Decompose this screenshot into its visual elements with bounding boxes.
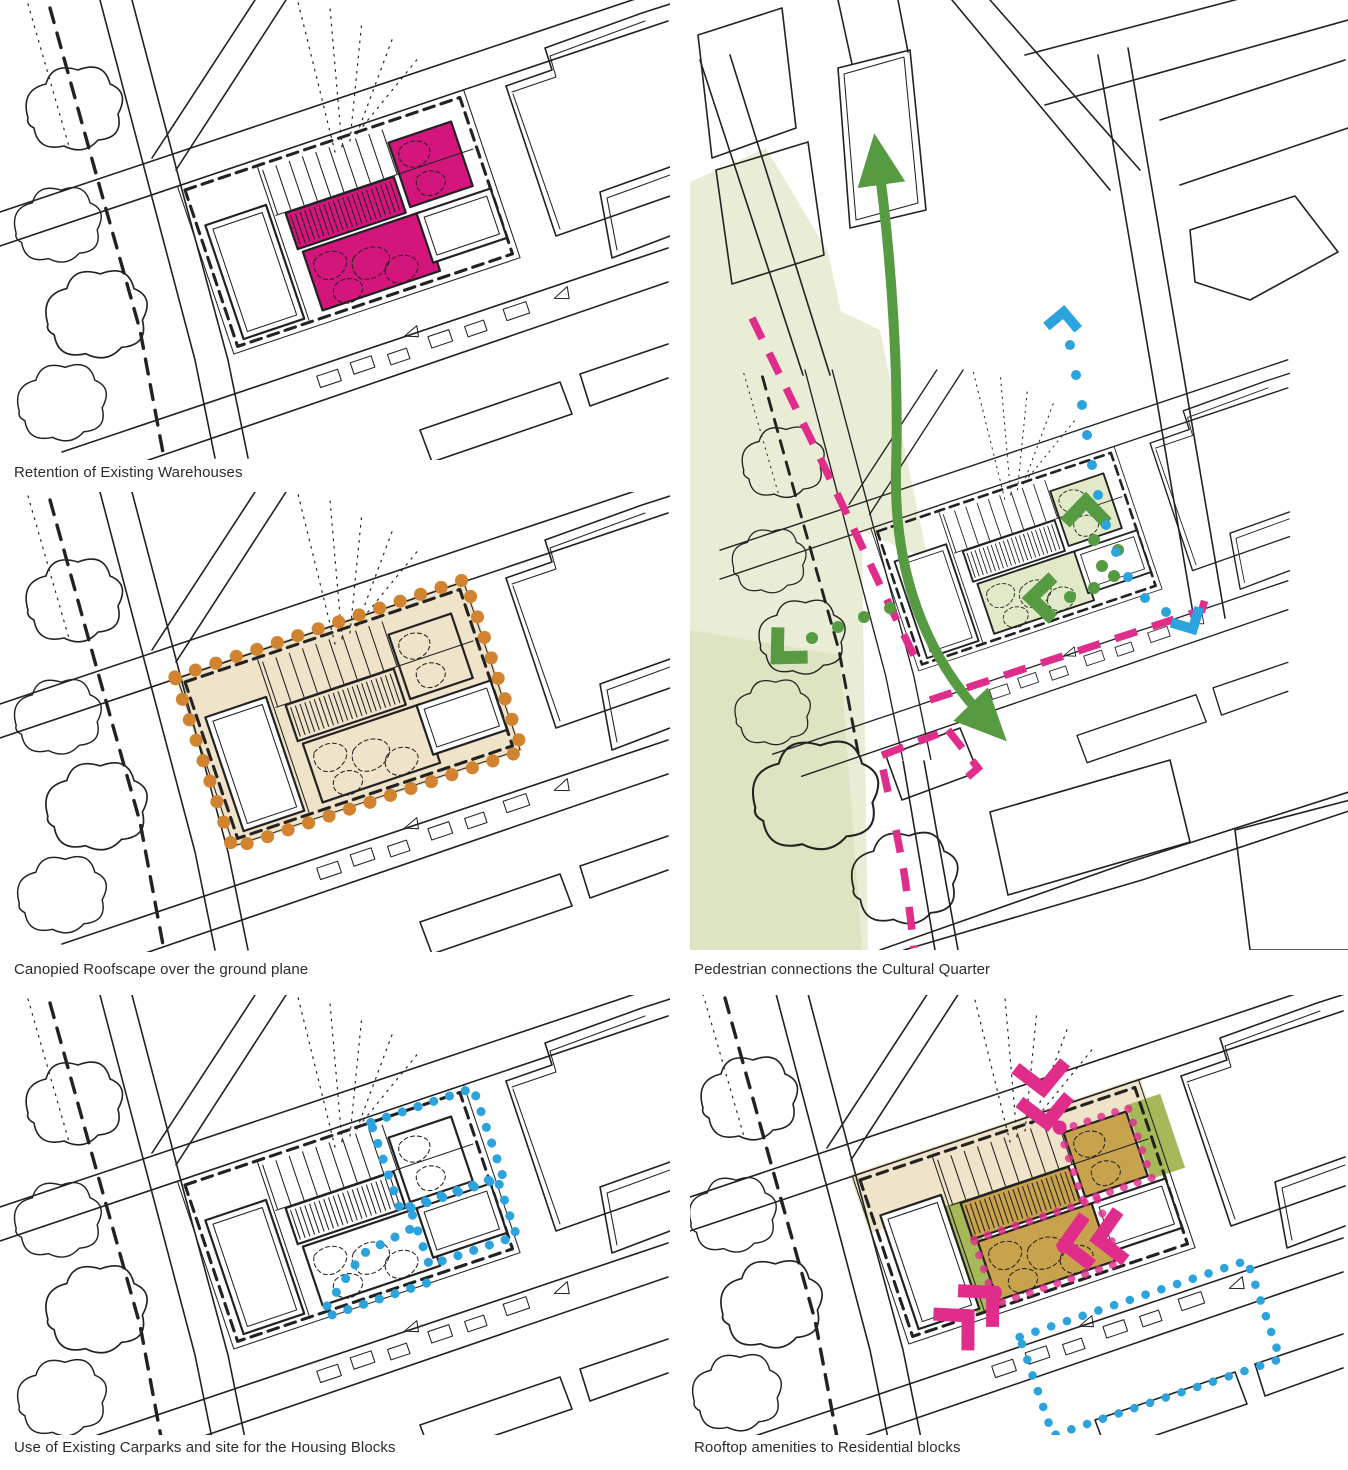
- carparks-sketch: [0, 995, 670, 1435]
- panel-rooftop: [690, 995, 1348, 1435]
- retention-sketch: [0, 0, 670, 460]
- panel-canopy: [0, 492, 670, 952]
- pedestrian-sketch: [690, 0, 1348, 950]
- caption-pedestrian: Pedestrian connections the Cultural Quar…: [694, 961, 990, 980]
- panel-pedestrian: [690, 0, 1348, 950]
- caption-carparks: Use of Existing Carparks and site for th…: [14, 1439, 396, 1458]
- panel-carparks: [0, 995, 670, 1435]
- rooftop-sketch: [690, 995, 1348, 1435]
- caption-rooftop: Rooftop amenities to Residential blocks: [694, 1439, 961, 1458]
- caption-canopy: Canopied Roofscape over the ground plane: [14, 961, 308, 980]
- canopy-sketch: [0, 492, 670, 952]
- diagram-sheet: Retention of Existing Warehouses Canopie…: [0, 0, 1348, 1470]
- panel-retention: [0, 0, 670, 460]
- caption-retention: Retention of Existing Warehouses: [14, 464, 243, 483]
